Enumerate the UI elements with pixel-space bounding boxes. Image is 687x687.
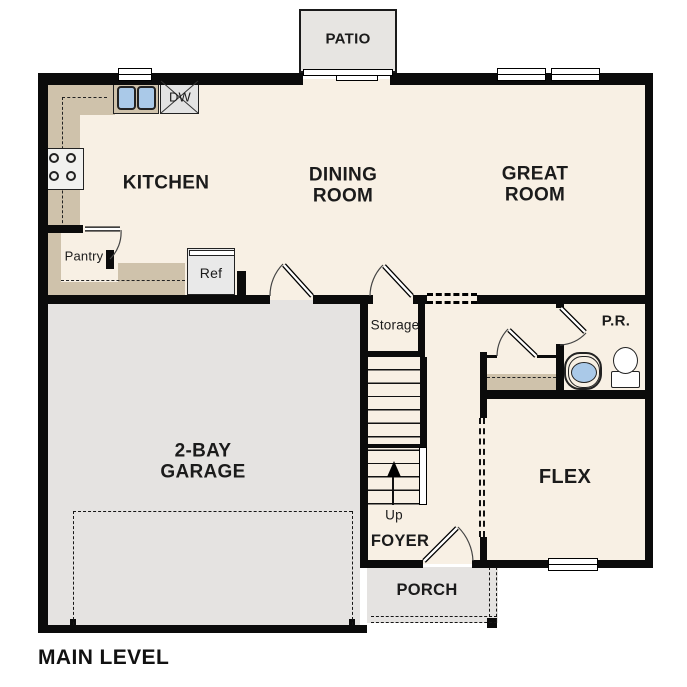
garage-door-outline xyxy=(352,511,353,625)
wall-segment xyxy=(38,73,48,633)
window xyxy=(548,558,598,571)
kitchen-sink xyxy=(113,80,159,114)
wall-segment xyxy=(598,560,653,568)
stairs xyxy=(368,357,420,505)
room-label-powder-room: P.R. xyxy=(602,314,630,331)
flex-opening-dash xyxy=(479,418,485,537)
room-label-foyer: FOYER xyxy=(371,532,429,550)
garage-door-outline xyxy=(73,511,352,512)
wall-segment xyxy=(38,295,270,304)
room-label-kitchen: KITCHEN xyxy=(123,172,210,193)
window xyxy=(551,68,600,81)
room-label-great-room: GREAT ROOM xyxy=(502,164,569,207)
fixture-label-refrigerator: Ref xyxy=(200,265,222,281)
stair-railing xyxy=(419,447,427,505)
pedestal-sink xyxy=(564,352,602,390)
wall-segment xyxy=(38,625,367,633)
wall-segment xyxy=(556,344,564,390)
wall-segment xyxy=(237,271,246,295)
stairs-direction-label: Up xyxy=(385,508,403,523)
porch-edge-dash xyxy=(371,622,497,623)
plan-title: MAIN LEVEL xyxy=(38,646,169,670)
pantry-counter xyxy=(61,282,118,295)
up-arrow-icon xyxy=(387,461,401,477)
closet-shelf-dash xyxy=(487,377,556,378)
wall-segment xyxy=(472,560,548,568)
sink-bowl xyxy=(571,362,597,383)
window xyxy=(497,68,546,81)
room-label-porch: PORCH xyxy=(396,581,457,599)
pantry-counter xyxy=(48,228,61,295)
wall-segment xyxy=(420,357,427,447)
burner-icon xyxy=(66,153,76,163)
wall-segment xyxy=(480,399,487,418)
wall-segment xyxy=(487,355,497,358)
garage-door-outline xyxy=(73,511,74,625)
floor-plan: PATIO KITCHEN DINING ROOM GREAT ROOM Pan… xyxy=(0,0,687,687)
burner-icon xyxy=(49,171,59,181)
refrigerator-handle xyxy=(189,250,235,256)
door-stop-stub xyxy=(106,250,114,269)
toilet-bowl xyxy=(613,347,638,374)
sink-basin xyxy=(117,86,136,110)
wall-segment xyxy=(556,295,564,308)
stair-center-line xyxy=(392,477,394,505)
porch-edge-dash xyxy=(371,616,497,617)
room-label-garage: 2-BAY GARAGE xyxy=(160,441,245,484)
wall-segment xyxy=(480,390,653,399)
burner-icon xyxy=(66,171,76,181)
fixture-label-dishwasher: DW xyxy=(169,90,191,105)
wall-segment xyxy=(360,295,368,568)
wall-segment xyxy=(360,560,423,568)
fixture-label-pantry: Pantry xyxy=(65,249,104,264)
porch-edge-dash xyxy=(489,567,490,617)
kitchen-counter xyxy=(118,263,185,295)
counter-dash xyxy=(61,280,185,281)
window xyxy=(118,68,152,81)
cased-opening-dash xyxy=(427,293,477,296)
sliding-door xyxy=(336,75,378,81)
room-label-dining-room: DINING ROOM xyxy=(309,165,377,208)
wall-segment xyxy=(48,225,83,233)
range-stove xyxy=(44,148,84,190)
wall-segment xyxy=(537,355,556,358)
room-label-storage: Storage xyxy=(371,318,420,333)
counter-dash xyxy=(62,97,107,98)
burner-icon xyxy=(49,153,59,163)
room-label-flex: FLEX xyxy=(539,466,591,488)
porch-edge-dash xyxy=(496,567,497,622)
cased-opening-dash xyxy=(427,301,477,304)
wall-segment xyxy=(480,537,487,560)
sink-basin xyxy=(137,86,156,110)
wall-segment xyxy=(645,73,653,568)
wall-segment xyxy=(38,73,303,85)
room-label-patio: PATIO xyxy=(325,32,370,49)
